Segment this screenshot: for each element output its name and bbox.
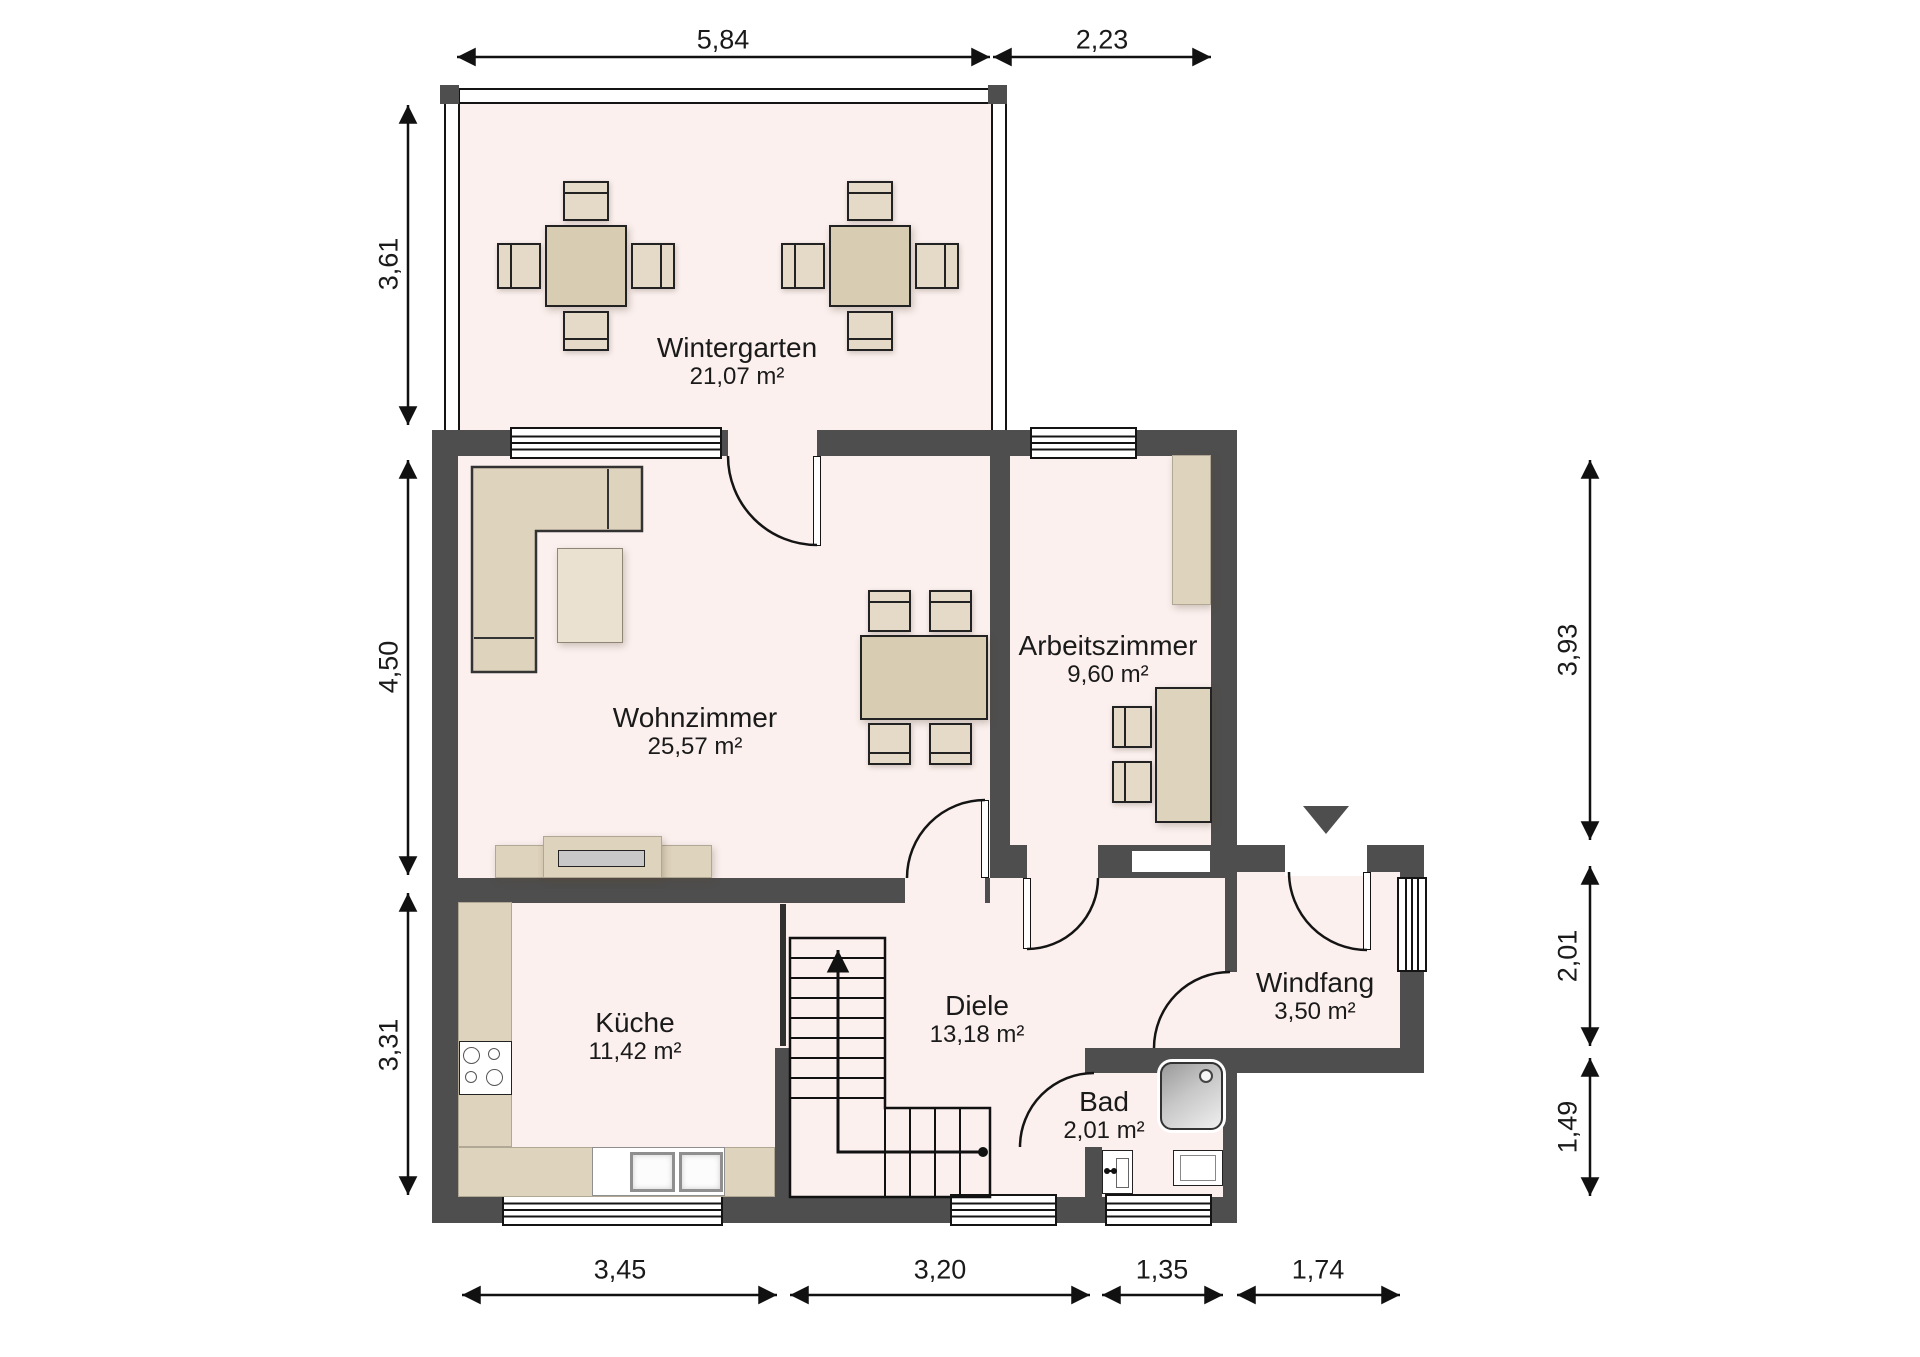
room-area: 2,01 m² <box>1063 1117 1144 1144</box>
room-area: 3,50 m² <box>1256 998 1374 1025</box>
chair <box>929 590 972 632</box>
room-label-diele: Diele 13,18 m² <box>930 990 1025 1048</box>
window-wohnzimmer <box>510 427 722 459</box>
chair <box>1112 706 1152 748</box>
room-area: 25,57 m² <box>613 733 777 760</box>
glass-wall-left <box>444 88 460 432</box>
chair <box>563 311 609 351</box>
wall-bad-right <box>1223 1073 1237 1197</box>
wall-bad-windfang-bottom <box>1085 1048 1424 1073</box>
dim-left-2: 4,50 <box>374 641 405 694</box>
room-area: 11,42 m² <box>589 1038 682 1065</box>
entrance-opening <box>1285 841 1367 876</box>
chair <box>868 723 911 765</box>
shelf <box>1172 455 1211 605</box>
chair <box>915 243 959 289</box>
dim-right-2: 2,01 <box>1553 930 1584 983</box>
burner <box>488 1048 500 1060</box>
wall-bad-left <box>1085 1147 1102 1197</box>
room-label-wintergarten: Wintergarten 21,07 m² <box>657 332 817 390</box>
door-leaf-wintergarten <box>813 456 821 546</box>
dim-right-3: 1,49 <box>1553 1101 1584 1154</box>
wintergarten-table-2 <box>829 225 911 307</box>
door-leaf-entrance <box>1363 872 1371 950</box>
kitchen-counter-left <box>458 902 512 1147</box>
window-windfang <box>1397 877 1427 972</box>
sink-basin <box>679 1152 723 1192</box>
desk <box>1155 687 1212 823</box>
burner <box>465 1071 477 1083</box>
dim-left-1: 3,61 <box>374 238 405 291</box>
wall-left <box>432 456 458 1197</box>
entrance-arrow-icon <box>1303 806 1349 834</box>
chair <box>631 243 675 289</box>
glass-corner-post-left <box>440 85 459 104</box>
chair <box>929 723 972 765</box>
chair <box>497 243 541 289</box>
burner <box>463 1047 480 1064</box>
dim-bottom-2: 3,20 <box>914 1255 967 1286</box>
room-label-windfang: Windfang 3,50 m² <box>1256 967 1374 1025</box>
wall-right-upper <box>1211 456 1237 845</box>
door-leaf-wohnzimmer <box>981 800 989 878</box>
chair <box>847 181 893 221</box>
room-name: Diele <box>930 990 1025 1021</box>
kitchen-open-door-leaf <box>780 904 786 1046</box>
room-name: Arbeitszimmer <box>1019 630 1198 661</box>
wall-wohnzimmer-arbeitszimmer <box>990 456 1010 845</box>
window-diele <box>950 1194 1057 1226</box>
wall-kueche-diele <box>775 1048 790 1197</box>
washbasin-inner <box>1180 1155 1216 1181</box>
dim-bottom-1: 3,45 <box>594 1255 647 1286</box>
dim-bottom-3: 1,35 <box>1136 1255 1189 1286</box>
chair <box>781 243 825 289</box>
doorway-wintergarten <box>728 430 817 456</box>
coffee-table <box>557 548 623 643</box>
dim-top-1: 5,84 <box>697 25 750 56</box>
glass-wall-top <box>444 88 1007 104</box>
window-kueche <box>502 1194 723 1226</box>
shower <box>1160 1062 1223 1130</box>
wintergarten-table-1 <box>545 225 627 307</box>
tv <box>558 850 645 867</box>
room-label-wohnzimmer: Wohnzimmer 25,57 m² <box>613 702 777 760</box>
wall-wohnzimmer-diele-left <box>458 878 905 903</box>
room-label-bad: Bad 2,01 m² <box>1063 1086 1144 1144</box>
room-label-arbeitszimmer: Arbeitszimmer 9,60 m² <box>1019 630 1198 688</box>
door-leaf-arbeitszimmer <box>1023 878 1031 949</box>
room-name: Wohnzimmer <box>613 702 777 733</box>
room-name: Bad <box>1063 1086 1144 1117</box>
windfang-floor <box>1225 845 1424 1073</box>
wall-wohnzimmer-diele-stub <box>985 878 990 903</box>
burner <box>486 1069 503 1086</box>
room-name: Wintergarten <box>657 332 817 363</box>
floor-plan: Wintergarten 21,07 m² Wohnzimmer 25,57 m… <box>0 0 1920 1357</box>
sink-basin <box>630 1152 675 1192</box>
toilet-lid <box>1116 1158 1129 1188</box>
chair <box>847 311 893 351</box>
room-area: 9,60 m² <box>1019 661 1198 688</box>
dim-bottom-4: 1,74 <box>1292 1255 1345 1286</box>
glass-wall-right <box>991 88 1007 432</box>
window-arbeitszimmer <box>1030 427 1137 459</box>
dim-left-3: 3,31 <box>374 1019 405 1072</box>
room-area: 13,18 m² <box>930 1021 1025 1048</box>
chair <box>563 181 609 221</box>
shower-drain <box>1199 1069 1213 1083</box>
dining-table <box>860 635 988 720</box>
room-area: 21,07 m² <box>657 363 817 390</box>
chair <box>868 590 911 632</box>
glass-corner-post-right <box>988 85 1007 104</box>
wall-diele-windfang <box>1225 872 1237 972</box>
room-name: Küche <box>589 1007 682 1038</box>
wall-niche <box>1132 851 1210 872</box>
room-name: Windfang <box>1256 967 1374 998</box>
window-bad <box>1105 1194 1212 1226</box>
wall-arbeitszimmer-bottom-left <box>990 845 1027 878</box>
dim-top-2: 2,23 <box>1076 25 1129 56</box>
chair <box>1112 761 1152 803</box>
room-label-kueche: Küche 11,42 m² <box>589 1007 682 1065</box>
dim-right-1: 3,93 <box>1553 624 1584 677</box>
